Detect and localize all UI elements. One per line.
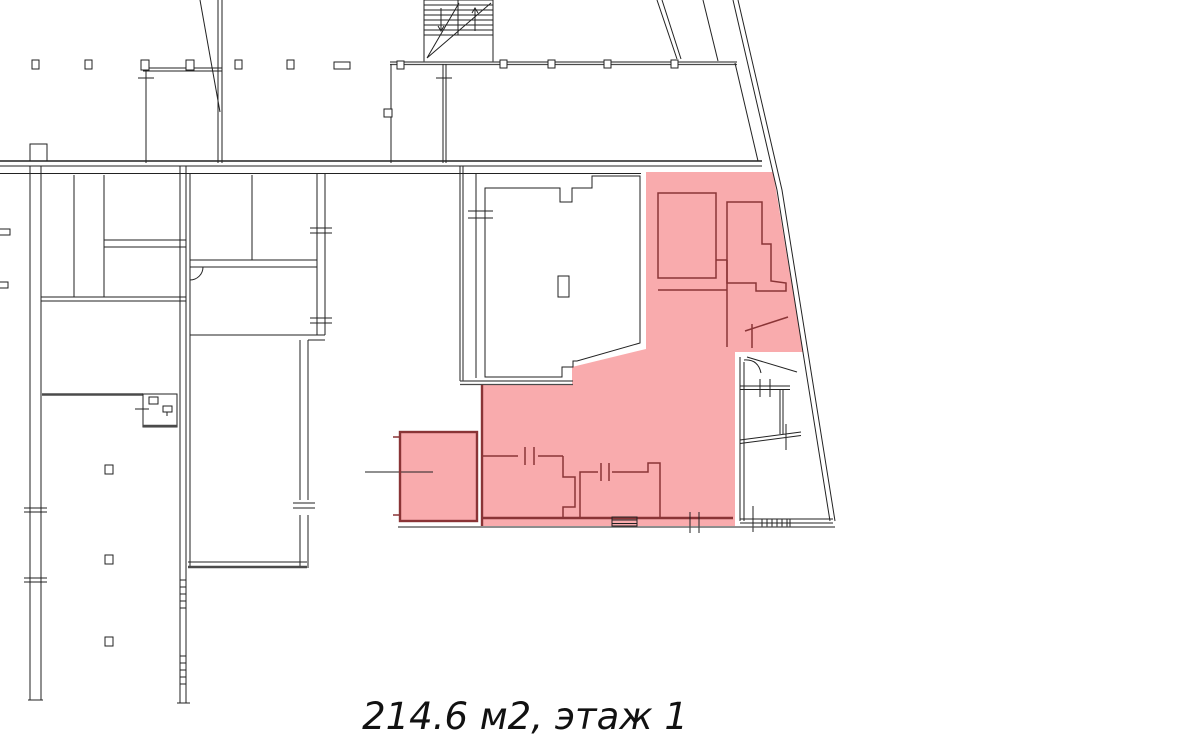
walls-left-block bbox=[0, 166, 190, 703]
toilet-icon bbox=[163, 406, 172, 412]
pillar bbox=[558, 276, 569, 297]
pilaster bbox=[30, 144, 47, 161]
window-hatch bbox=[180, 580, 186, 684]
column-marker bbox=[105, 637, 113, 646]
floor-plan-svg: 214.6 м2, этаж 1 bbox=[0, 0, 1200, 745]
staircase-icon bbox=[424, 0, 493, 62]
column-marker bbox=[105, 465, 113, 474]
highlighted-room-small bbox=[400, 432, 477, 521]
floor-plan-page: 214.6 м2, этаж 1 bbox=[0, 0, 1200, 745]
wc-room bbox=[135, 394, 177, 427]
walls-center-hall bbox=[460, 166, 640, 385]
door-swing-arc bbox=[190, 267, 203, 280]
outer-wall-diagonal-inner bbox=[657, 0, 681, 59]
caption: 214.6 м2, этаж 1 bbox=[362, 695, 688, 738]
walls-middle-block bbox=[188, 173, 433, 568]
door-swing-arc bbox=[744, 360, 761, 373]
sink-icon bbox=[149, 397, 158, 404]
column-marker bbox=[384, 109, 392, 117]
column-marker bbox=[105, 555, 113, 564]
